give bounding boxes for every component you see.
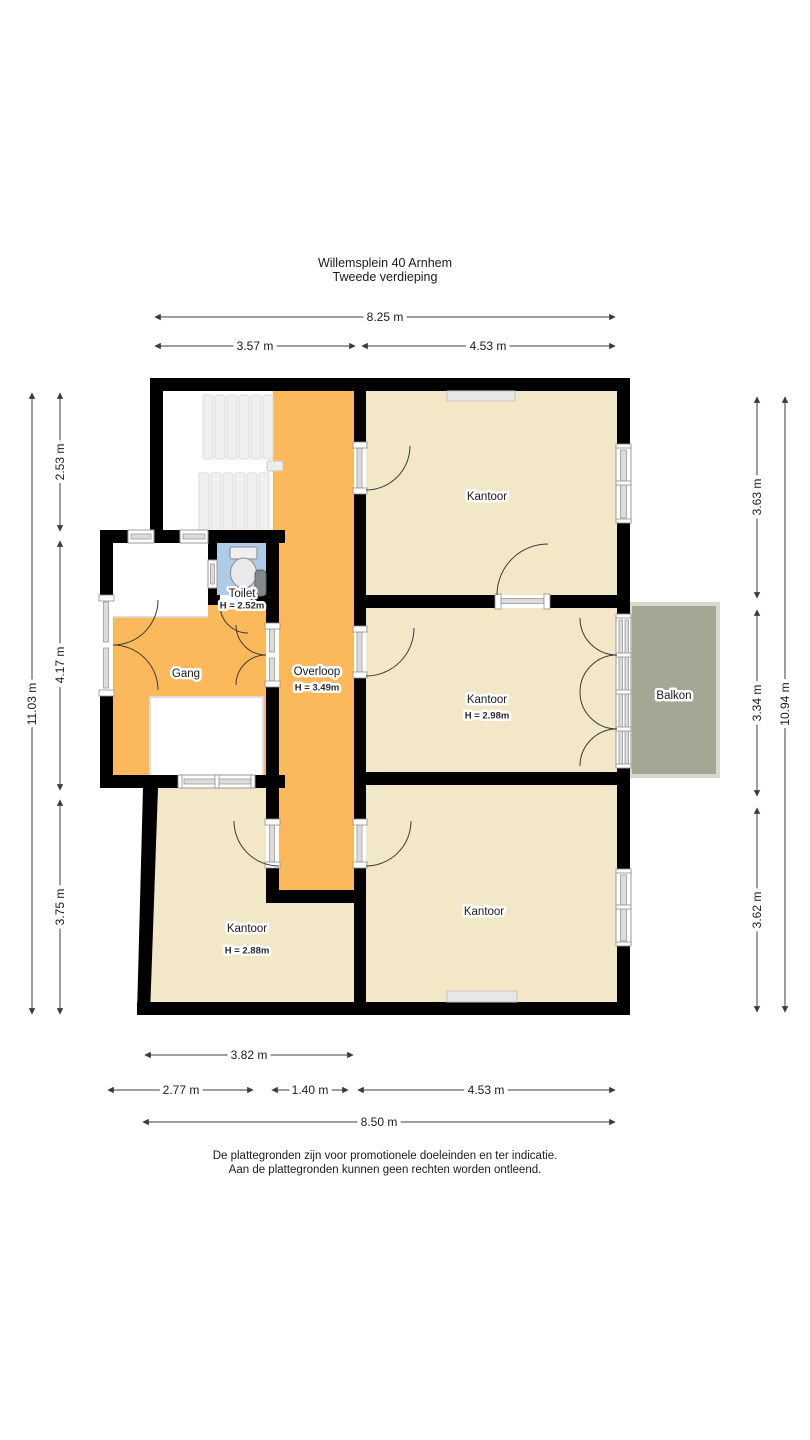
room-kantoor-mid xyxy=(366,608,617,778)
dim-right-bottom: 3.62 m xyxy=(750,892,764,929)
void-room-lower xyxy=(150,697,263,777)
void-room-upper xyxy=(113,543,208,617)
disclaimer-line-2: Aan de plattegronden kunnen geen rechten… xyxy=(0,1163,770,1177)
label-kantoor-mid-height: H = 2.98m xyxy=(465,711,510,722)
room-kantoor-bottom-right xyxy=(366,785,617,1008)
dim-bottom-right: 4.53 m xyxy=(468,1083,505,1097)
dim-bottom-mid: 1.40 m xyxy=(292,1083,329,1097)
label-kantoor-bottom-right: Kantoor xyxy=(464,906,504,918)
dim-top-full: 8.25 m xyxy=(367,310,404,324)
dim-right-full: 10.94 m xyxy=(778,682,792,725)
dim-left-top: 2.53 m xyxy=(53,444,67,481)
dim-right-top: 3.63 m xyxy=(750,479,764,516)
disclaimer-line-1: De plattegronden zijn voor promotionele … xyxy=(0,1149,770,1163)
dim-left-bottom: 3.75 m xyxy=(53,889,67,926)
dim-top-right: 4.53 m xyxy=(470,339,507,353)
label-toilet: Toilet xyxy=(229,588,257,600)
floorplan-page: Willemsplein 40 Arnhem Tweede verdieping… xyxy=(0,0,810,1440)
label-toilet-height: H = 2.52m xyxy=(220,601,265,612)
stair-rail xyxy=(267,461,283,471)
dim-left-mid: 4.17 m xyxy=(53,647,67,684)
window-top-sill xyxy=(447,391,515,401)
dim-bottom-left: 2.77 m xyxy=(163,1083,200,1097)
label-overloop: Overloop xyxy=(294,666,341,678)
label-kantoor-bottom-left: Kantoor xyxy=(227,923,267,935)
disclaimer: De plattegronden zijn voor promotionele … xyxy=(0,1149,770,1177)
label-overloop-height: H = 3.49m xyxy=(295,683,340,694)
label-gang: Gang xyxy=(172,668,200,680)
window-bottom-sill xyxy=(447,991,517,1002)
dim-top-left: 3.57 m xyxy=(237,339,274,353)
dim-left-full: 11.03 m xyxy=(25,683,39,725)
window-void-room xyxy=(178,775,255,788)
window-bump-right xyxy=(180,530,208,543)
label-balkon: Balkon xyxy=(656,690,691,702)
window-bump-left xyxy=(128,530,154,543)
sink-icon xyxy=(255,570,266,596)
label-kantoor-top: Kantoor xyxy=(467,491,507,503)
dim-bottom-inner: 3.82 m xyxy=(231,1048,268,1062)
toilet-tank-icon xyxy=(230,547,257,559)
room-overloop xyxy=(273,385,354,890)
floorplan-drawing: 8.25 m 3.57 m 4.53 m 11.03 m 2.53 m 4.17… xyxy=(0,0,810,1440)
window-right-top xyxy=(616,444,631,523)
toilet-bowl-icon xyxy=(231,558,257,588)
dim-bottom-full: 8.50 m xyxy=(361,1115,398,1129)
label-kantoor-bottom-left-height: H = 2.88m xyxy=(225,946,270,957)
label-kantoor-mid: Kantoor xyxy=(467,694,507,706)
window-right-bottom xyxy=(616,869,631,946)
window-toilet xyxy=(208,560,217,588)
dim-right-mid: 3.34 m xyxy=(750,685,764,722)
